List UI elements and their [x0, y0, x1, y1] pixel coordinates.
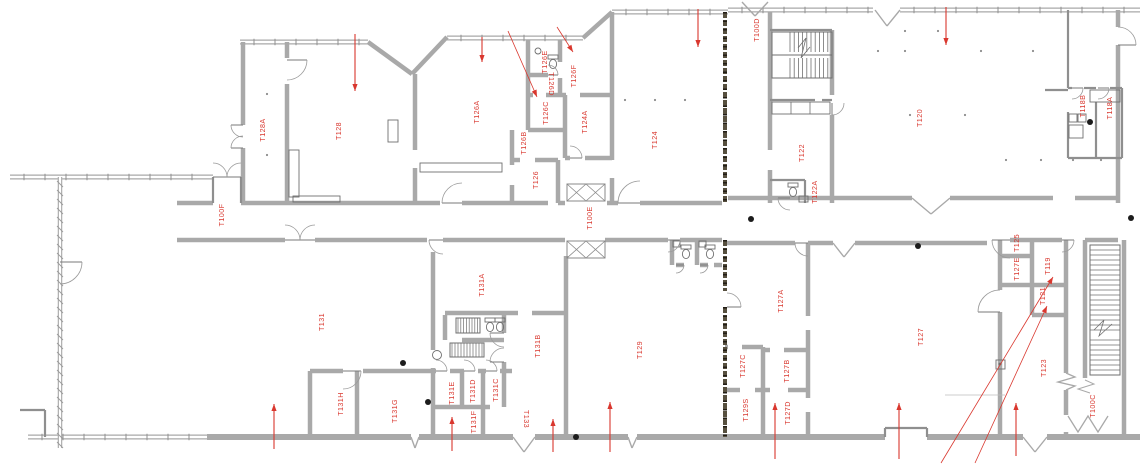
room-label-T131: T131 [317, 313, 326, 331]
room-label-T131E: T131E [447, 381, 456, 404]
room-label-T124: T124 [650, 131, 659, 149]
egress-arrow [479, 37, 484, 62]
egress-arrow [607, 402, 612, 452]
reference-dots [266, 30, 1134, 440]
room-label-T125: T125 [1012, 234, 1021, 252]
room-label-T131H: T131H [336, 392, 345, 416]
room-label-T123: T123 [1039, 359, 1048, 377]
room-label-T127E: T127E [1012, 257, 1021, 280]
room-label-T127C: T127C [738, 354, 747, 378]
egress-arrow [271, 404, 276, 449]
door-symbols [411, 2, 1108, 452]
room-label-T100E: T100E [585, 206, 594, 229]
room-label-T100F: T100F [217, 203, 226, 226]
room-label-T126E: T126E [540, 50, 549, 73]
egress-annotations [271, 7, 1053, 463]
room-label-T126B: T126B [519, 131, 528, 154]
walls [20, 10, 1140, 437]
room-label-T129S: T129S [741, 398, 750, 421]
room-label-T126: T126 [531, 171, 540, 189]
room-label-T122A: T122A [810, 180, 819, 203]
room-label-T126D: T126D [547, 72, 556, 96]
room-label-T120: T120 [915, 109, 924, 127]
black-fixture-dot [1087, 119, 1093, 125]
room-label-T127: T127 [916, 328, 925, 346]
room-label-T122: T122 [797, 144, 806, 162]
egress-arrow [896, 403, 901, 459]
egress-arrow [772, 403, 777, 459]
floor-plan-canvas: T128AT128T100FT126AT126ET126DT126FT126CT… [0, 0, 1140, 464]
black-fixture-dot [400, 360, 406, 366]
room-label-T100D: T100D [752, 18, 761, 42]
room-label-T100C: T100C [1088, 394, 1097, 418]
egress-arrow [943, 7, 948, 45]
room-label-T118B: T118B [1078, 95, 1087, 118]
leader-arrow [508, 31, 537, 97]
egress-arrow [1013, 403, 1018, 456]
room-label-T133: T133 [522, 410, 531, 428]
room-label-T124A: T124A [580, 110, 589, 133]
room-label-T126F: T126F [569, 64, 578, 87]
room-label-T131D: T131D [468, 379, 477, 403]
room-label-T118A: T118A [1105, 97, 1114, 120]
room-label-T131A: T131A [477, 273, 486, 296]
room-label-T131C: T131C [491, 378, 500, 402]
egress-arrow [695, 9, 700, 47]
room-label-T126A: T126A [472, 100, 481, 123]
room-label-T128A: T128A [258, 118, 267, 141]
black-fixture-dot [573, 434, 579, 440]
room-label-T126C: T126C [541, 101, 550, 125]
room-label-T129: T129 [635, 341, 644, 359]
room-label-T127B: T127B [782, 359, 791, 382]
room-label-T127D: T127D [783, 401, 792, 425]
room-label-T127A: T127A [776, 289, 785, 312]
room-label-T119: T119 [1043, 257, 1052, 274]
room-label-T131G: T131G [390, 399, 399, 423]
room-label-T131B: T131B [533, 334, 542, 357]
black-fixture-dot [915, 243, 921, 249]
room-label-T131F: T131F [469, 410, 478, 433]
room-label-T128: T128 [334, 122, 343, 140]
room-label-T121: T121 [1038, 287, 1047, 305]
floor-plan-page: T128AT128T100FT126AT126ET126DT126FT126CT… [0, 0, 1140, 464]
black-fixture-dot [748, 216, 754, 222]
black-fixture-dot [425, 399, 431, 405]
black-fixture-dot [1128, 215, 1134, 221]
